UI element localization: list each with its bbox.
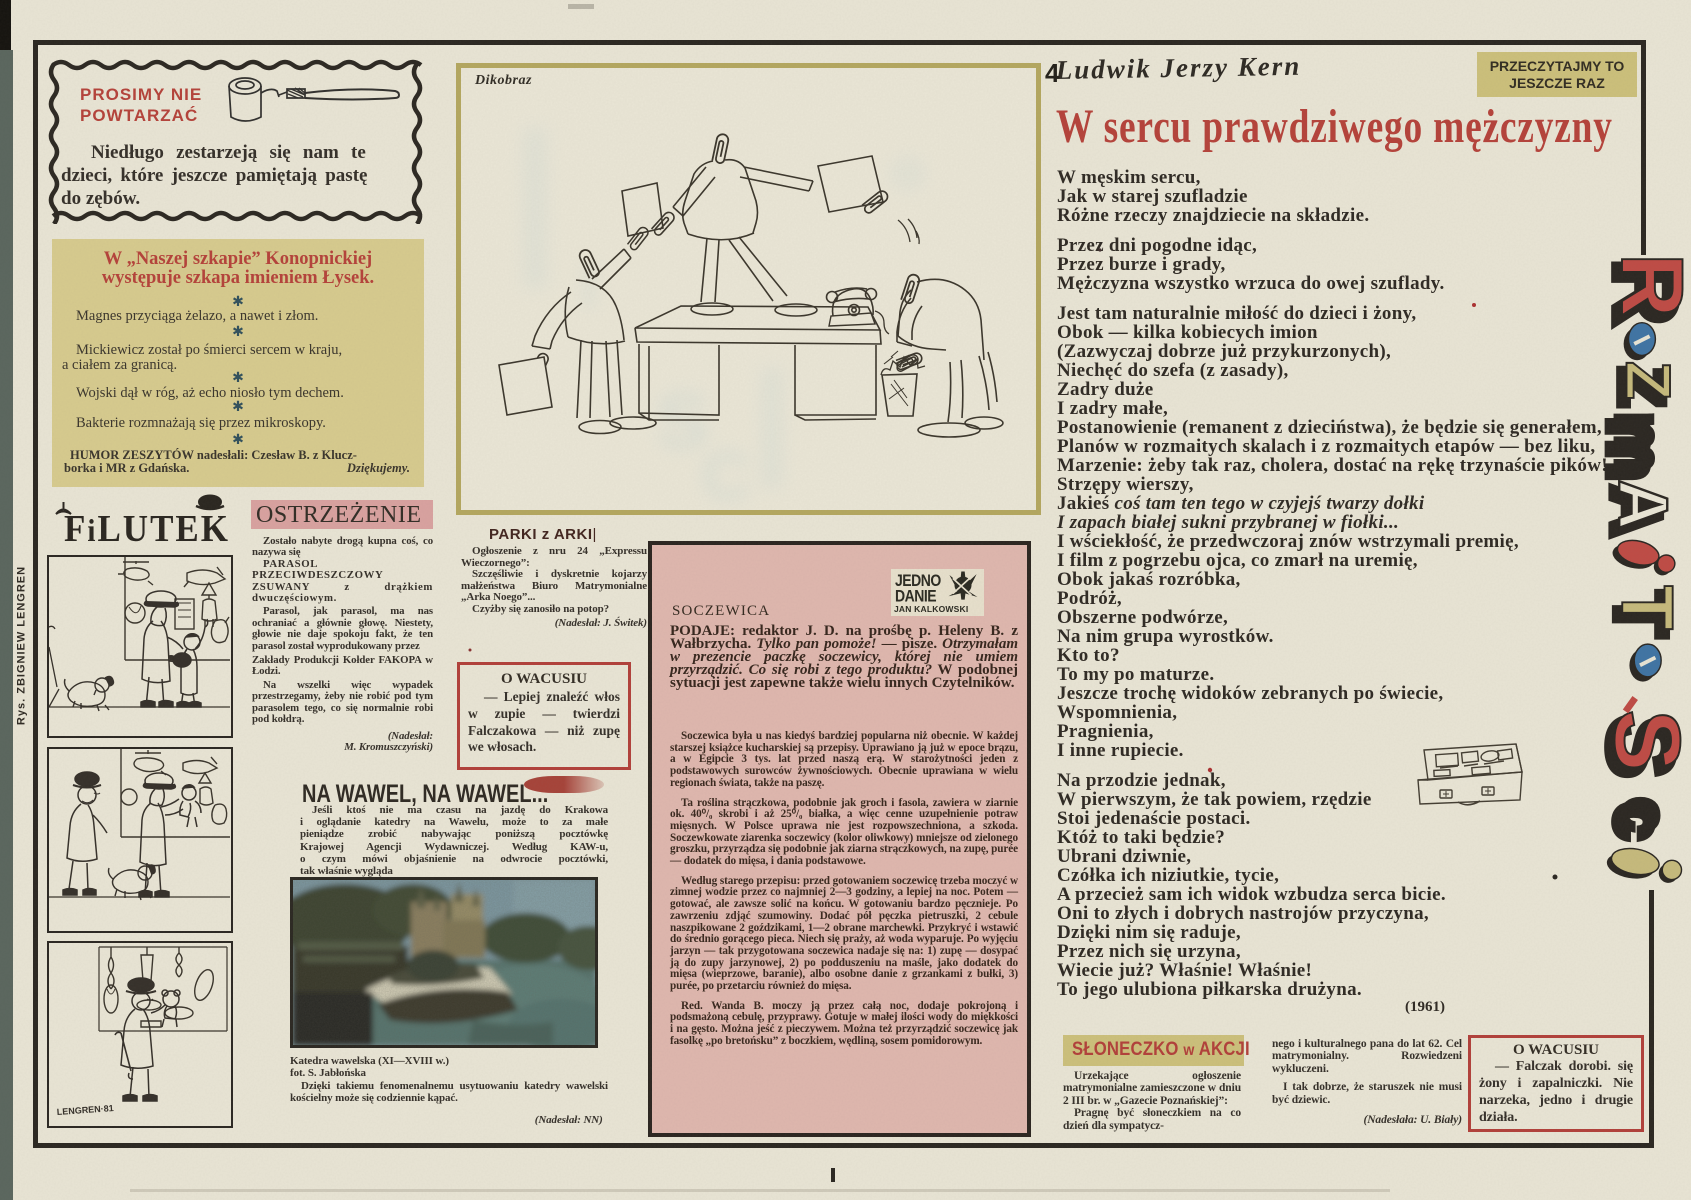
svg-text:S: S bbox=[1596, 710, 1691, 772]
svg-text:c: c bbox=[1607, 795, 1685, 834]
svg-text:R: R bbox=[1603, 253, 1691, 317]
svg-text:T: T bbox=[1606, 585, 1687, 630]
svg-text:o: o bbox=[891, 138, 925, 200]
svg-text:m: m bbox=[1599, 410, 1680, 475]
svg-text:A: A bbox=[1604, 480, 1682, 530]
svg-text:C: C bbox=[701, 437, 752, 510]
svg-text:Z: Z bbox=[1613, 361, 1683, 400]
svg-text:LENGREN·81: LENGREN·81 bbox=[56, 1103, 114, 1117]
